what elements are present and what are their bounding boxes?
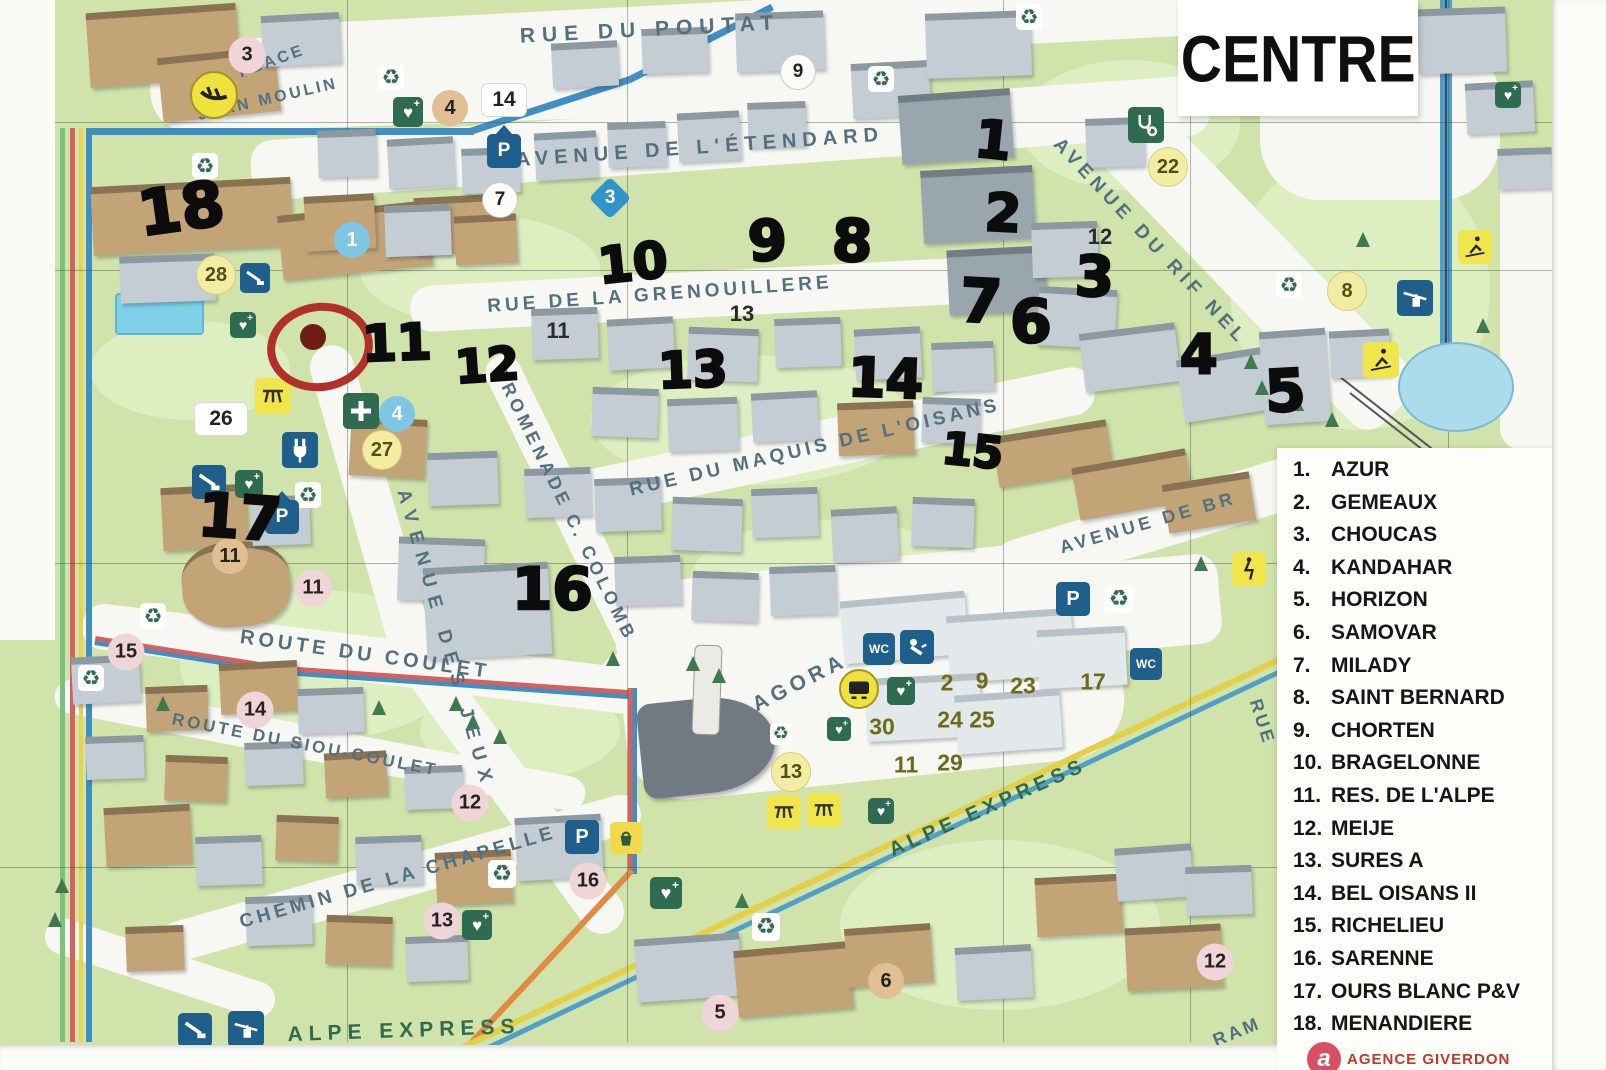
parking-pin-icon: P — [487, 134, 521, 168]
tree-icon — [1194, 556, 1208, 571]
skater-icon — [1232, 552, 1266, 586]
recycle-icon: ♻ — [140, 603, 166, 629]
legend-item-label: SAMOVAR — [1331, 617, 1437, 650]
building — [1497, 147, 1552, 190]
defibrillator-icon: ♥+ — [868, 798, 894, 824]
legend-item-number: 18. — [1293, 1008, 1329, 1041]
legend-item-label: RICHELIEU — [1331, 910, 1444, 943]
map-marker-box: 14 — [482, 84, 526, 116]
handwritten-number: 14 — [847, 351, 924, 408]
wc-icon: WC — [863, 633, 895, 665]
legend-item: 1.AZUR — [1277, 454, 1556, 487]
legend-item-number: 8. — [1293, 682, 1329, 715]
legend-item: 4.KANDAHAR — [1277, 552, 1556, 585]
legend-item-label: GEMEAUX — [1331, 487, 1437, 520]
map-marker-ytext: 2 — [941, 670, 954, 697]
building — [1079, 322, 1181, 392]
pharmacy-icon — [343, 393, 379, 429]
building — [931, 341, 995, 392]
handwritten-number: 2 — [984, 187, 1023, 241]
handwritten-number: 9 — [747, 213, 789, 271]
building — [1114, 843, 1194, 901]
legend-item-number: 9. — [1293, 715, 1329, 748]
pond — [1398, 342, 1514, 432]
agency-name: AGENCE GIVERDON — [1347, 1051, 1510, 1068]
sledging-icon — [178, 1013, 212, 1047]
playground-icon — [767, 795, 801, 829]
bus-stop-icon — [839, 669, 879, 709]
building — [1417, 6, 1507, 74]
legend-item-number: 15. — [1293, 910, 1329, 943]
parking-icon: P — [565, 820, 599, 854]
handwritten-number: 17 — [196, 485, 283, 551]
route-edge-blue — [86, 128, 92, 1042]
building — [769, 565, 837, 616]
map-marker-white: 9 — [781, 55, 815, 89]
building — [454, 213, 518, 265]
skier-icon — [1363, 342, 1399, 378]
skilift-icon — [1397, 280, 1433, 316]
recycle-icon: ♻ — [78, 665, 104, 691]
map-title: CENTRE — [1181, 20, 1416, 97]
page-margin-bottom — [0, 1045, 1277, 1070]
legend-item-number: 13. — [1293, 845, 1329, 878]
highlight-marker — [300, 324, 326, 350]
defibrillator-icon: ♥+ — [827, 717, 851, 741]
waterslide-icon — [240, 263, 270, 293]
building — [831, 506, 900, 562]
building — [297, 687, 365, 734]
legend-item-label: KANDAHAR — [1331, 552, 1452, 585]
tree-icon — [493, 729, 507, 744]
page-margin-left — [0, 0, 55, 640]
legend-item: 13.SURES A — [1277, 845, 1556, 878]
legend-item-number: 14. — [1293, 878, 1329, 911]
parking-icon: P — [1056, 582, 1090, 616]
building — [104, 804, 193, 867]
market-icon — [610, 822, 642, 854]
resort-map: CENTRE 1.AZUR2.GEMEAUX3.CHOUCAS4.KANDAHA… — [0, 0, 1606, 1070]
map-marker-plain: 11 — [546, 318, 569, 344]
building — [774, 317, 842, 368]
legend-item-number: 5. — [1293, 584, 1329, 617]
tree-icon — [606, 651, 620, 666]
defibrillator-icon: ♥+ — [1495, 82, 1521, 108]
handwritten-number: 3 — [1074, 249, 1115, 306]
tree-icon — [1356, 232, 1370, 247]
wc-icon: WC — [1130, 648, 1162, 680]
recycle-icon: ♻ — [378, 64, 404, 90]
handwritten-number: 8 — [831, 211, 873, 270]
recycle-icon: ♻ — [868, 66, 894, 92]
map-marker-pink: 3 — [229, 37, 266, 74]
legend-item: 15.RICHELIEU — [1277, 910, 1556, 943]
map-marker-tan: 6 — [868, 963, 904, 999]
recycle-icon: ♻ — [752, 913, 780, 941]
handwritten-number: 1 — [972, 113, 1013, 168]
building — [1185, 865, 1253, 916]
map-marker-yellow: 13 — [771, 752, 811, 792]
legend-item-number: 12. — [1293, 813, 1329, 846]
map-marker-ytext: 24 — [937, 707, 963, 734]
map-marker-white: 7 — [483, 183, 517, 217]
map-marker-blue: 1 — [334, 222, 370, 258]
medical-icon — [1128, 107, 1164, 143]
building — [317, 129, 377, 178]
legend-item-label: CHORTEN — [1331, 715, 1435, 748]
defibrillator-icon: ♥+ — [650, 877, 682, 909]
legend-item-number: 1. — [1293, 454, 1329, 487]
building — [325, 915, 393, 966]
building — [591, 387, 659, 438]
street-label: RUE — [1245, 696, 1280, 747]
defibrillator-icon: ♥+ — [887, 677, 915, 705]
route-edge-yellow — [79, 128, 83, 1042]
building — [275, 815, 339, 862]
building — [551, 40, 619, 88]
recycle-icon: ♻ — [1016, 4, 1042, 30]
defibrillator-icon: ♥+ — [462, 910, 492, 940]
legend-item-label: SURES A — [1331, 845, 1424, 878]
legend-item: 17.OURS BLANC P&V — [1277, 976, 1556, 1009]
map-marker-diamond: 3 — [589, 177, 631, 219]
tree-icon — [735, 893, 749, 908]
route-edge-green — [60, 128, 65, 1042]
legend-item: 9.CHORTEN — [1277, 715, 1556, 748]
legend-item-label: CHOUCAS — [1331, 519, 1437, 552]
handwritten-number: 12 — [453, 340, 520, 390]
building — [195, 835, 263, 886]
map-marker-pink: 12 — [452, 785, 489, 822]
legend-item: 18.MENANDIERE — [1277, 1008, 1556, 1041]
street-label: ALPE EXPRESS — [287, 1015, 521, 1047]
tree-icon — [48, 912, 62, 927]
building — [387, 136, 455, 188]
map-title-box: CENTRE — [1178, 0, 1418, 116]
page-margin-right — [1552, 0, 1606, 1070]
legend-item-number: 11. — [1293, 780, 1329, 813]
baby-change-icon — [900, 630, 934, 664]
tree-icon — [1244, 354, 1258, 369]
agency-logo-icon: a — [1307, 1042, 1341, 1070]
recycle-icon: ♻ — [1105, 585, 1133, 613]
handwritten-number: 5 — [1264, 361, 1307, 421]
map-marker-tan: 4 — [432, 90, 468, 126]
sledge-icon — [190, 71, 238, 119]
map-marker-yellow: 27 — [362, 430, 402, 470]
legend-panel: 1.AZUR2.GEMEAUX3.CHOUCAS4.KANDAHAR5.HORI… — [1277, 448, 1556, 1070]
map-marker-pink: 12 — [1197, 944, 1234, 981]
building — [955, 944, 1034, 1001]
playground-icon — [255, 378, 291, 414]
map-marker-plain: 13 — [730, 301, 754, 327]
pin-tip — [495, 125, 513, 135]
map-marker-pink: 5 — [702, 995, 739, 1032]
map-marker-blue: 4 — [379, 396, 415, 432]
map-marker-pink: 15 — [108, 634, 145, 671]
building — [384, 204, 452, 257]
defibrillator-icon: ♥+ — [393, 97, 423, 127]
building — [634, 932, 743, 1002]
map-marker-pink: 13 — [424, 903, 461, 940]
agency-logo: a AGENCE GIVERDON — [1307, 1042, 1510, 1070]
building — [427, 451, 499, 506]
building — [667, 397, 739, 452]
legend-item-label: SARENNE — [1331, 943, 1434, 976]
handwritten-number: 6 — [1010, 292, 1052, 352]
building — [164, 755, 228, 802]
bus-route-blue — [92, 128, 474, 135]
recycle-icon: ♻ — [1276, 272, 1302, 298]
tree-icon — [1325, 412, 1339, 427]
legend-item-label: MENANDIERE — [1331, 1008, 1472, 1041]
legend-item: 2.GEMEAUX — [1277, 487, 1556, 520]
map-marker-yellow: 8 — [1327, 271, 1367, 311]
map-marker-yellow: 28 — [196, 255, 236, 295]
legend-item-label: AZUR — [1331, 454, 1389, 487]
legend-item-label: BRAGELONNE — [1331, 747, 1480, 780]
handwritten-number: 16 — [512, 560, 593, 618]
handwritten-number: 7 — [958, 271, 1003, 333]
legend-item-number: 4. — [1293, 552, 1329, 585]
map-marker-pink: 16 — [570, 863, 607, 900]
legend-item-number: 6. — [1293, 617, 1329, 650]
tree-icon — [686, 656, 700, 671]
skilift-icon — [228, 1011, 264, 1047]
map-marker-ytext: 11 — [894, 752, 918, 779]
legend-item: 10.BRAGELONNE — [1277, 747, 1556, 780]
handwritten-number: 13 — [657, 344, 728, 396]
skier-icon — [1458, 230, 1492, 264]
handwritten-number: 15 — [940, 427, 1005, 477]
tree-icon — [1476, 318, 1490, 333]
ev-charge-icon — [282, 432, 318, 468]
legend-item: 12.MEIJE — [1277, 813, 1556, 846]
legend-item-number: 16. — [1293, 943, 1329, 976]
recycle-icon: ♻ — [770, 723, 792, 745]
building — [671, 497, 743, 552]
map-marker-ytext: 9 — [976, 668, 989, 695]
handwritten-number: 11 — [361, 317, 432, 369]
building — [911, 497, 975, 548]
legend-item-number: 2. — [1293, 487, 1329, 520]
building — [751, 390, 819, 442]
map-marker-yellow: 22 — [1148, 147, 1188, 187]
legend-item-number: 7. — [1293, 650, 1329, 683]
building — [751, 487, 819, 538]
legend-item-label: SAINT BERNARD — [1331, 682, 1505, 715]
building — [405, 935, 469, 982]
building — [125, 925, 185, 972]
legend-item: 11.RES. DE L'ALPE — [1277, 780, 1556, 813]
building — [733, 941, 853, 1018]
map-marker-ytext: 17 — [1080, 669, 1106, 696]
map-marker-pink: 11 — [295, 570, 332, 607]
defibrillator-icon: ♥+ — [230, 312, 256, 338]
building — [1035, 874, 1124, 937]
handwritten-number: 4 — [1180, 328, 1218, 382]
map-marker-ytext: 23 — [1010, 673, 1036, 700]
legend-item: 7.MILADY — [1277, 650, 1556, 683]
map-marker-box: 26 — [195, 403, 247, 435]
tree-icon — [156, 696, 170, 711]
legend-item-number: 3. — [1293, 519, 1329, 552]
handwritten-number: 10 — [596, 234, 670, 291]
legend-item-number: 17. — [1293, 976, 1329, 1009]
playground-icon — [807, 793, 841, 827]
legend-item-label: BEL OISANS II — [1331, 878, 1476, 911]
legend-item-label: RES. DE L'ALPE — [1331, 780, 1495, 813]
map-marker-ytext: 29 — [937, 750, 963, 777]
handwritten-number: 18 — [134, 172, 228, 245]
building — [691, 571, 759, 622]
legend-list: 1.AZUR2.GEMEAUX3.CHOUCAS4.KANDAHAR5.HORI… — [1277, 454, 1556, 1041]
legend-item: 3.CHOUCAS — [1277, 519, 1556, 552]
building — [85, 735, 144, 780]
map-marker-ytext: 30 — [869, 714, 895, 741]
legend-item-label: OURS BLANC P&V — [1331, 976, 1520, 1009]
legend-item-number: 10. — [1293, 747, 1329, 780]
route-edge-red — [70, 128, 75, 1042]
map-marker-ytext: 25 — [969, 707, 995, 734]
legend-item: 16.SARENNE — [1277, 943, 1556, 976]
legend-item: 5.HORIZON — [1277, 584, 1556, 617]
map-marker-pink: 14 — [237, 692, 274, 729]
legend-item-label: MEIJE — [1331, 813, 1394, 846]
legend-item: 6.SAMOVAR — [1277, 617, 1556, 650]
legend-item-label: MILADY — [1331, 650, 1412, 683]
legend-item-label: HORIZON — [1331, 584, 1428, 617]
legend-item: 14.BEL OISANS II — [1277, 878, 1556, 911]
legend-item: 8.SAINT BERNARD — [1277, 682, 1556, 715]
tree-icon — [55, 878, 69, 893]
building — [614, 555, 682, 606]
recycle-icon: ♻ — [488, 860, 516, 888]
tree-icon — [372, 700, 386, 715]
tree-icon — [712, 668, 726, 683]
